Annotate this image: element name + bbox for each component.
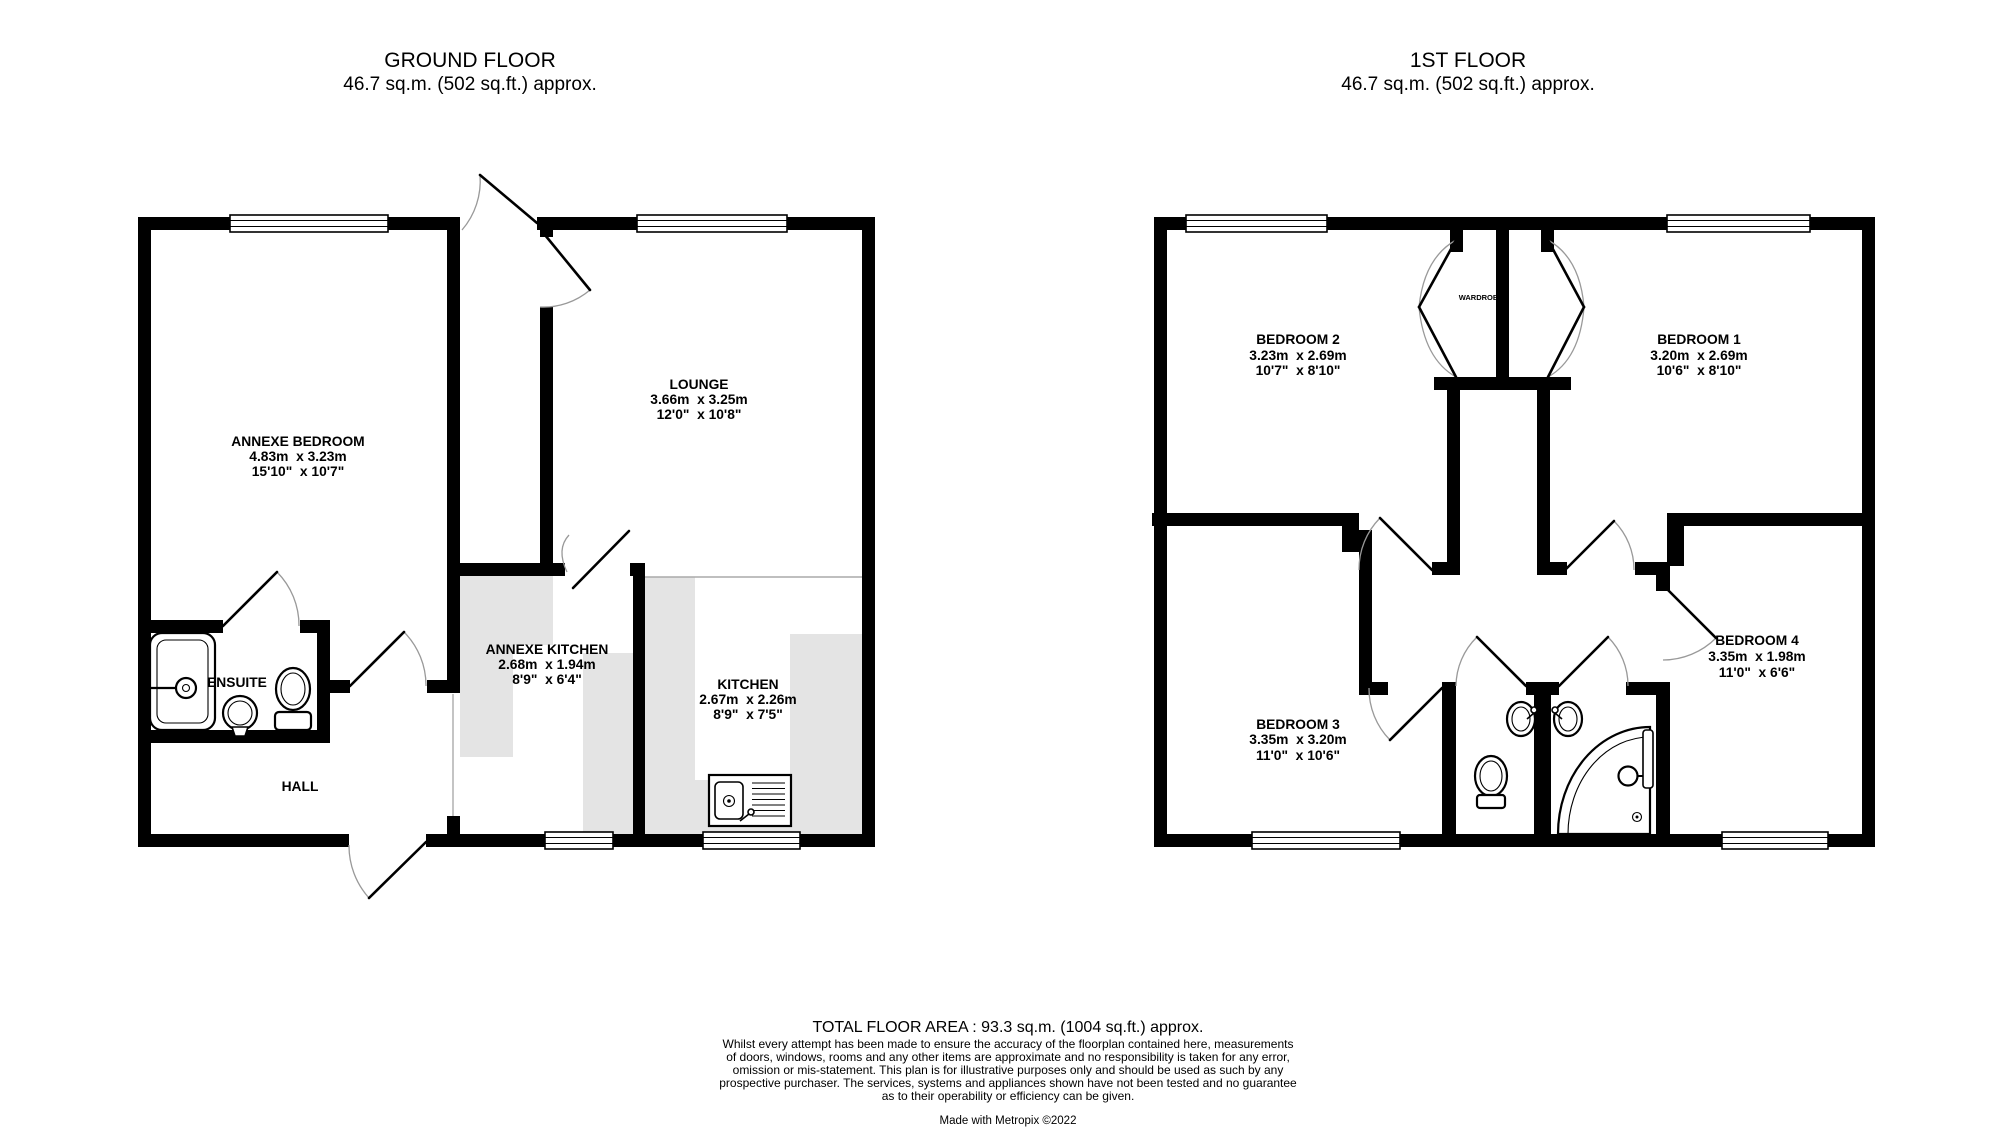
disclaimer-line: as to their operability or efficiency ca… [882,1089,1135,1103]
window-icon [637,215,787,232]
wall [1534,695,1551,847]
wall [1526,682,1559,695]
room-metric: 4.83m x 3.23m [249,449,346,464]
wall [1434,377,1571,390]
total-floor-area: TOTAL FLOOR AREA : 93.3 sq.m. (1004 sq.f… [813,1019,1204,1036]
wall [540,307,553,576]
wall [787,217,875,230]
room-metric: 2.68m x 1.94m [498,657,595,672]
footer: TOTAL FLOOR AREA : 93.3 sq.m. (1004 sq.f… [719,1019,1297,1127]
counter [645,577,695,834]
wall [1667,526,1684,566]
room-name: ANNEXE BEDROOM [231,434,364,449]
wall [1154,217,1167,847]
metropix-credit: Made with Metropix ©2022 [940,1115,1077,1127]
room-name: ANNEXE KITCHEN [486,642,609,657]
counter [460,576,553,645]
sink-icon [1507,702,1537,736]
disclaimer-line: Whilst every attempt has been made to en… [723,1037,1294,1051]
wall [1537,390,1550,575]
floorplan-page: GROUND FLOOR 46.7 sq.m. (502 sq.ft.) app… [0,0,2000,1130]
wall [1432,562,1460,575]
door-swing-icon [540,235,590,307]
toilet-icon [275,668,311,730]
room-metric: 3.66m x 3.25m [650,392,747,407]
wall [1442,682,1456,847]
first-floor-title: 1ST FLOOR [1410,49,1526,72]
room-imperial: 8'9" x 6'4" [512,672,582,687]
room-metric: 2.67m x 2.26m [699,692,796,707]
wall [862,217,875,847]
room-imperial: 11'0" x 6'6" [1719,665,1795,680]
room-label-bedroom2: BEDROOM 2 3.23m x 2.69m 10'7" x 8'10" [1249,332,1346,378]
wall [1154,834,1252,847]
disclaimer-line: omission or mis-statement. This plan is … [733,1063,1284,1077]
shower-icon [1558,727,1653,834]
room-label-ensuite: ENSUITE [207,675,267,690]
wall [138,217,230,230]
window-icon [703,832,800,849]
counter [790,634,862,834]
window-icon [545,832,613,849]
wall [1626,682,1656,695]
wall [138,217,151,847]
wall [317,620,330,743]
room-name: BEDROOM 3 [1256,717,1340,732]
wall [426,834,545,847]
door-swing-icon [1456,637,1526,686]
room-imperial: 11'0" x 10'6" [1256,748,1340,763]
wall [1537,562,1567,575]
wall [447,217,460,693]
first-floor-area: 46.7 sq.m. (502 sq.ft.) approx. [1341,74,1594,95]
room-imperial: 8'9" x 7'5" [713,707,783,722]
room-imperial: 12'0" x 10'8" [657,407,742,422]
window-icon [1186,215,1327,232]
wall [447,816,460,847]
shower-icon [150,633,215,730]
room-metric: 3.20m x 2.69m [1650,348,1747,363]
room-label-hall: HALL [282,779,319,794]
ground-floor-area: 46.7 sq.m. (502 sq.ft.) approx. [343,74,596,95]
wall [1862,217,1875,847]
room-label-kitchen: KITCHEN 2.67m x 2.26m 8'9" x 7'5" [699,677,796,722]
door-swing-icon [223,572,299,626]
room-metric: 3.35m x 3.20m [1249,732,1346,747]
floorplan-canvas: GROUND FLOOR 46.7 sq.m. (502 sq.ft.) app… [0,0,2000,1130]
disclaimer-line: prospective purchaser. The services, sys… [719,1076,1297,1090]
wall [1656,682,1670,847]
toilet-icon [1475,756,1507,808]
wall [447,563,565,576]
room-metric: 3.35m x 1.98m [1708,649,1805,664]
wall [427,680,460,693]
door-swing-icon [350,632,426,686]
window-icon [1667,215,1810,232]
window-icon [230,215,388,232]
ground-floor-title: GROUND FLOOR [384,49,556,72]
ground-floor-title-block: GROUND FLOOR 46.7 sq.m. (502 sq.ft.) app… [343,49,596,95]
wall [1342,526,1359,552]
wall [1667,513,1875,526]
wall [138,620,223,633]
wall [1447,390,1460,575]
room-imperial: 10'6" x 8'10" [1657,363,1742,378]
door-swing-icon [562,531,629,588]
door-swing-icon [1369,688,1442,740]
door-swing-icon [1559,637,1628,686]
room-label-bedroom1: BEDROOM 1 3.20m x 2.69m 10'6" x 8'10" [1650,332,1747,378]
gf-windows [230,215,800,849]
room-imperial: 10'7" x 8'10" [1256,363,1341,378]
gf-kitchen-counters [460,576,862,834]
room-label-bedroom3: BEDROOM 3 3.35m x 3.20m 11'0" x 10'6" [1249,717,1346,763]
door-swing-icon [1565,521,1634,570]
wall [1496,217,1509,390]
window-icon [1252,832,1400,849]
room-name: KITCHEN [717,677,778,692]
room-imperial: 15'10" x 10'7" [252,464,345,479]
room-label-bedroom4: BEDROOM 4 3.35m x 1.98m 11'0" x 6'6" [1708,633,1805,680]
room-name: BEDROOM 1 [1657,332,1741,347]
wall [1152,513,1359,526]
kitchen-sink-icon [709,775,791,826]
room-name: BEDROOM 2 [1256,332,1340,347]
door-swing-icon [349,842,426,898]
wall [613,834,703,847]
wall [633,563,645,847]
window-icon [1722,832,1828,849]
sink-icon [1552,702,1582,736]
room-label-lounge: LOUNGE 3.66m x 3.25m 12'0" x 10'8" [650,377,747,422]
first-floor-plan: WARDROBE [1152,215,1875,849]
room-name: BEDROOM 4 [1715,633,1799,648]
ground-floor-plan: ANNEXE BEDROOM 4.83m x 3.23m 15'10" x 10… [138,175,875,898]
first-floor-title-block: 1ST FLOOR 46.7 sq.m. (502 sq.ft.) approx… [1341,49,1594,95]
counter [583,653,633,834]
room-name: LOUNGE [669,377,728,392]
wall [540,217,553,237]
disclaimer-line: of doors, windows, rooms and any other i… [726,1050,1290,1064]
ff-labels: BEDROOM 2 3.23m x 2.69m 10'7" x 8'10" BE… [1249,332,1805,763]
ff-fixtures [1475,702,1653,834]
wall [138,834,349,847]
door-swing-icon [462,175,537,230]
wall [1359,682,1388,695]
room-label-annexe-bedroom: ANNEXE BEDROOM 4.83m x 3.23m 15'10" x 10… [231,434,364,479]
wall [1635,562,1670,575]
room-metric: 3.23m x 2.69m [1249,348,1346,363]
